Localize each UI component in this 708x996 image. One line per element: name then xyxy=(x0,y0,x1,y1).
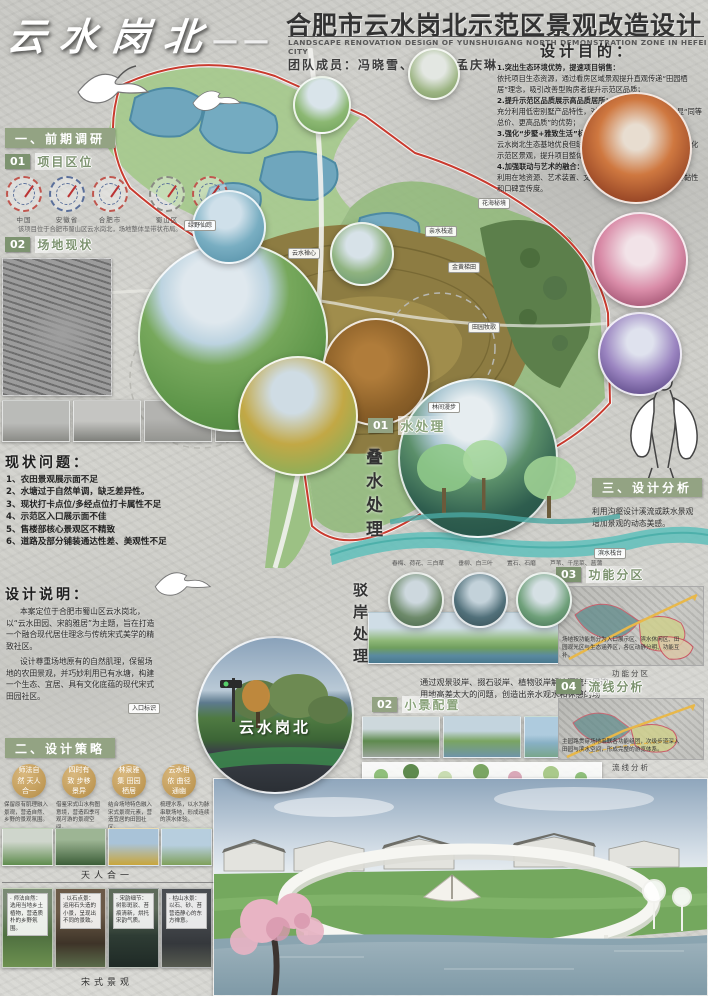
plan-label: 绿野仙踪 xyxy=(184,220,216,231)
purpose-line: 依托项目生态资源，通过看房区域景观提升直观传递“田园栖居”理念，吸引改善型购房者… xyxy=(497,73,705,95)
strategy-circle: 林泉雅集 田园栖居 xyxy=(112,764,146,798)
sub-number: 02 xyxy=(5,237,30,252)
plant-label: 垂柳、白三叶 xyxy=(458,558,493,567)
poster-subtitle-en: LANDSCAPE RENOVATION DESIGN OF YUNSHUIGA… xyxy=(288,38,708,56)
sub-number: 02 xyxy=(372,697,397,712)
crane-icon xyxy=(188,80,244,118)
note-text: 本案定位于合肥市蜀山区云水岗北，以“云水田园、宋韵雅居”为主题，旨在打造一个融合… xyxy=(6,606,158,702)
problem-item: 2、水塘过于自然单调，缺乏差异性。 xyxy=(6,486,296,498)
flow-caption: 流线分析 xyxy=(558,762,704,773)
strategy-photo xyxy=(2,828,53,866)
compass-icon xyxy=(49,176,85,212)
sub-title: 水处理 xyxy=(398,416,453,435)
bank-circle xyxy=(452,572,508,628)
strategy-caption: 保留原有肌理融入景观，营造自然、乡野的景观氛围。 xyxy=(4,802,52,825)
song-photo: · 宋韵细节：树影斑驳、苔痕清新，烘托宋韵气质。 xyxy=(108,888,159,968)
location-step: 合肥市 xyxy=(92,176,128,224)
sub-title: 功能分区 xyxy=(586,566,652,583)
location-step: 蜀山区 xyxy=(149,176,185,224)
strategy-divider2: 宋式景观 xyxy=(0,975,214,988)
main-render xyxy=(213,778,708,996)
scenery-render xyxy=(362,716,440,758)
plan-label: 亲水栈道 xyxy=(425,226,457,237)
poster-board: 云水岗北 — — 合肥市云水岗北示范区景观改造设计 LANDSCAPE RENO… xyxy=(0,0,708,996)
sub-title: 小景配置 xyxy=(402,696,468,713)
compass-icon xyxy=(6,176,42,212)
crane-icon xyxy=(72,58,152,114)
plant-label: 春梅、荷花、三白草 xyxy=(392,558,444,567)
song-caption: · 师法自然：选用当地乡土植物，营造质朴的乡野氛围。 xyxy=(7,893,48,936)
strategy-circle: 师法自然 天人合一 xyxy=(12,764,46,798)
plan-label: 金黄梯田 xyxy=(448,262,480,273)
strategy-divider1: 天人合一 xyxy=(0,868,214,881)
sub-title: 项目区位 xyxy=(35,153,101,170)
strategy-circle: 云水相依 曲径通幽 xyxy=(162,764,196,798)
entrance-render-circle: 云水岗北 xyxy=(196,636,354,794)
photo-circle-blossom xyxy=(592,212,688,308)
team-line: 团队成员：冯晓雪、臧简、孟庆琳 xyxy=(288,56,498,73)
problem-item: 5、售楼部核心景观区不精致 xyxy=(6,524,296,536)
plan-label: 田园牧歌 xyxy=(468,322,500,333)
flow-text: 主园路贯穿场地串联各功能组团，次级步道深入田园与滨水空间，形成完整的游览体系。 xyxy=(562,738,680,754)
photo-circle-lavender xyxy=(598,312,682,396)
sub-scenery: 02 小景配置 xyxy=(372,696,468,713)
title-dash: — — xyxy=(212,26,267,56)
bank-circle xyxy=(388,572,444,628)
satellite-image xyxy=(2,258,112,396)
note-heading: 设计说明： xyxy=(5,584,90,604)
problem-item: 3、现状打卡点位/多经点位打卡属性不足 xyxy=(6,499,296,511)
scenery-render xyxy=(443,716,521,758)
render-circle-village xyxy=(408,48,460,100)
note-paragraph: 设计尊重场地原有的自然肌理，保留场地的农田景观，并巧妙利用已有水塘，构建一个生态… xyxy=(6,656,158,702)
strategy-photo xyxy=(108,828,159,866)
strategy-caption: 梳理水系，以水为脉串联场地，形成连续的滨水体验。 xyxy=(160,802,210,825)
strategy-circle: 四时有致 步移景异 xyxy=(62,764,96,798)
plan-label: 入口标识 xyxy=(128,703,160,714)
section-strategy-banner: 二、设计策略 xyxy=(5,738,115,758)
render-circle-field xyxy=(238,356,358,476)
strategy-photo xyxy=(55,828,106,866)
render-circle-meadow xyxy=(293,76,351,134)
plan-label: 云水禅心 xyxy=(288,248,320,259)
plan-label: 林间漫步 xyxy=(428,402,460,413)
water-vertical-label: 叠水处理 xyxy=(360,448,385,544)
sub-project-location: 01 项目区位 xyxy=(5,153,101,170)
zoning-text: 场地按功能划分为入口展示区、滨水休闲区、田园观光区与生态涵养区，各区动静分明、功… xyxy=(562,636,680,660)
plan-label: 滨水栈台 xyxy=(594,548,626,559)
strategy-photo-row xyxy=(2,828,212,866)
song-photo: · 师法自然：选用当地乡土植物，营造质朴的乡野氛围。 xyxy=(2,888,53,968)
site-photo xyxy=(2,400,70,442)
divider-line xyxy=(2,882,214,883)
sub-title: 流线分析 xyxy=(586,678,652,695)
sub-number: 01 xyxy=(368,418,393,433)
plan-label: 花海秘境 xyxy=(478,198,510,209)
sub-site-status: 02 场地现状 xyxy=(5,236,101,253)
entrance-sign-text: 云水岗北 xyxy=(239,717,311,738)
song-caption: · 宋韵细节：树影斑驳、苔痕清新，烘托宋韵气质。 xyxy=(113,893,154,929)
sub-flow: 04 流线分析 xyxy=(556,678,652,695)
compass-icon xyxy=(92,176,128,212)
section-research-banner: 一、前期调研 xyxy=(5,128,115,148)
sub-title: 场地现状 xyxy=(35,236,101,253)
problems-list: 1、农田景观展示面不足 2、水塘过于自然单调，缺乏差异性。 3、现状打卡点位/多… xyxy=(6,474,296,549)
sub-number: 04 xyxy=(556,679,581,694)
purpose-heading: 设计目的： xyxy=(540,40,635,61)
compass-icon xyxy=(149,176,185,212)
problems-heading: 现状问题： xyxy=(5,452,90,472)
site-photo xyxy=(73,400,141,442)
sub-number: 01 xyxy=(5,154,30,169)
song-photo: · 以石点景：运用石头造的小景，呈现出不同的景致。 xyxy=(55,888,106,968)
problem-item: 6、道路及部分铺装通达性差、美观性不足 xyxy=(6,536,296,548)
waterfall-section-sketch xyxy=(390,430,620,530)
location-step: 中国 xyxy=(6,176,42,224)
plant-label: 置石、石磨 xyxy=(507,558,536,567)
song-photo-row: · 师法自然：选用当地乡土植物，营造质朴的乡野氛围。 · 以石点景：运用石头造的… xyxy=(2,888,212,968)
problem-item: 4、示范区入口展示面不佳 xyxy=(6,511,296,523)
song-caption: · 以石点景：运用石头造的小景，呈现出不同的景致。 xyxy=(60,893,101,929)
song-photo: · 枯山水景：以石、砂、苔营造静心的东方禅意。 xyxy=(161,888,212,968)
purpose-line: 1.突出生态环境优势，提速项目销售： xyxy=(497,62,705,73)
crane-icon xyxy=(150,560,214,604)
sub-water: 01 水处理 xyxy=(368,416,453,435)
note-paragraph: 本案定位于合肥市蜀山区云水岗北，以“云水田园、宋韵雅居”为主题，旨在打造一个融合… xyxy=(6,606,158,652)
location-step: 安徽省 xyxy=(49,176,85,224)
logo-calligraphy: 云水岗北 xyxy=(5,6,219,61)
render-circle-wetland xyxy=(330,222,394,286)
sub-zoning: 03 功能分区 xyxy=(556,566,652,583)
header-rule xyxy=(288,36,704,37)
strategy-photo xyxy=(161,828,212,866)
photo-circle-autumn xyxy=(580,92,692,204)
problem-item: 1、农田景观展示面不足 xyxy=(6,474,296,486)
bank-circle xyxy=(516,572,572,628)
song-caption: · 枯山水景：以石、砂、苔营造静心的东方禅意。 xyxy=(166,893,207,929)
